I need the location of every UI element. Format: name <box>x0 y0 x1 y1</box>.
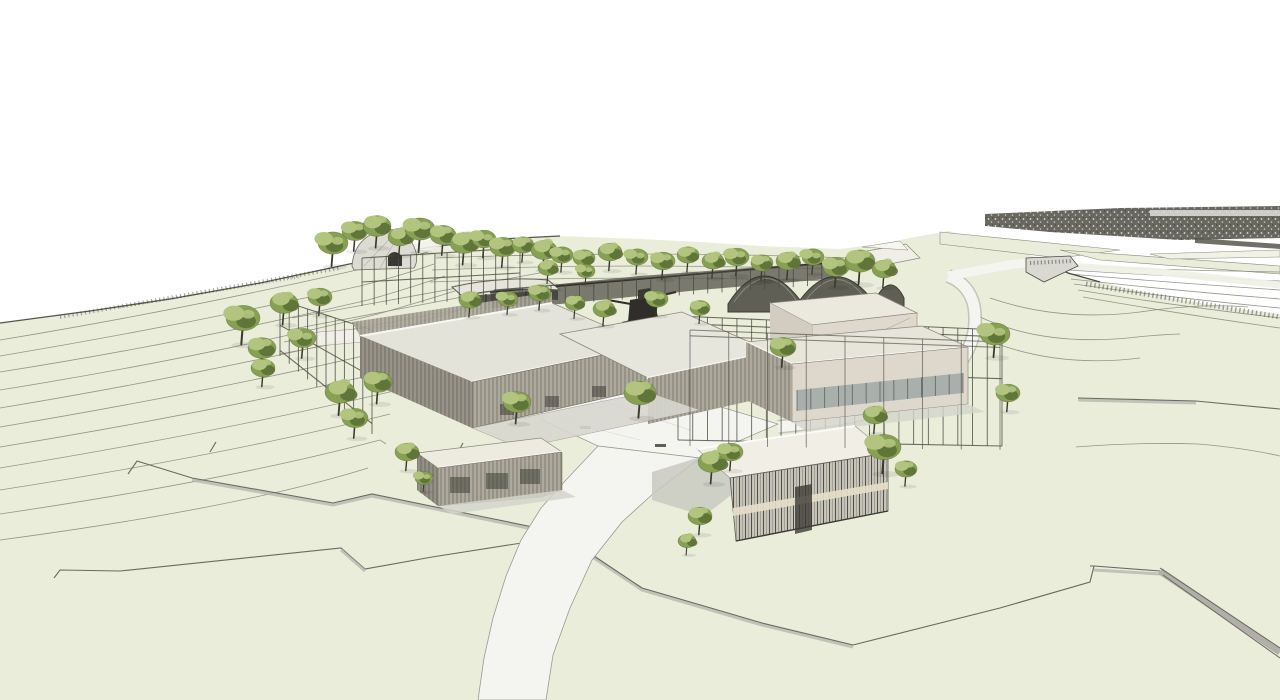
bench <box>655 444 666 447</box>
rendering-svg <box>0 0 1280 700</box>
architectural-rendering <box>0 0 1280 700</box>
